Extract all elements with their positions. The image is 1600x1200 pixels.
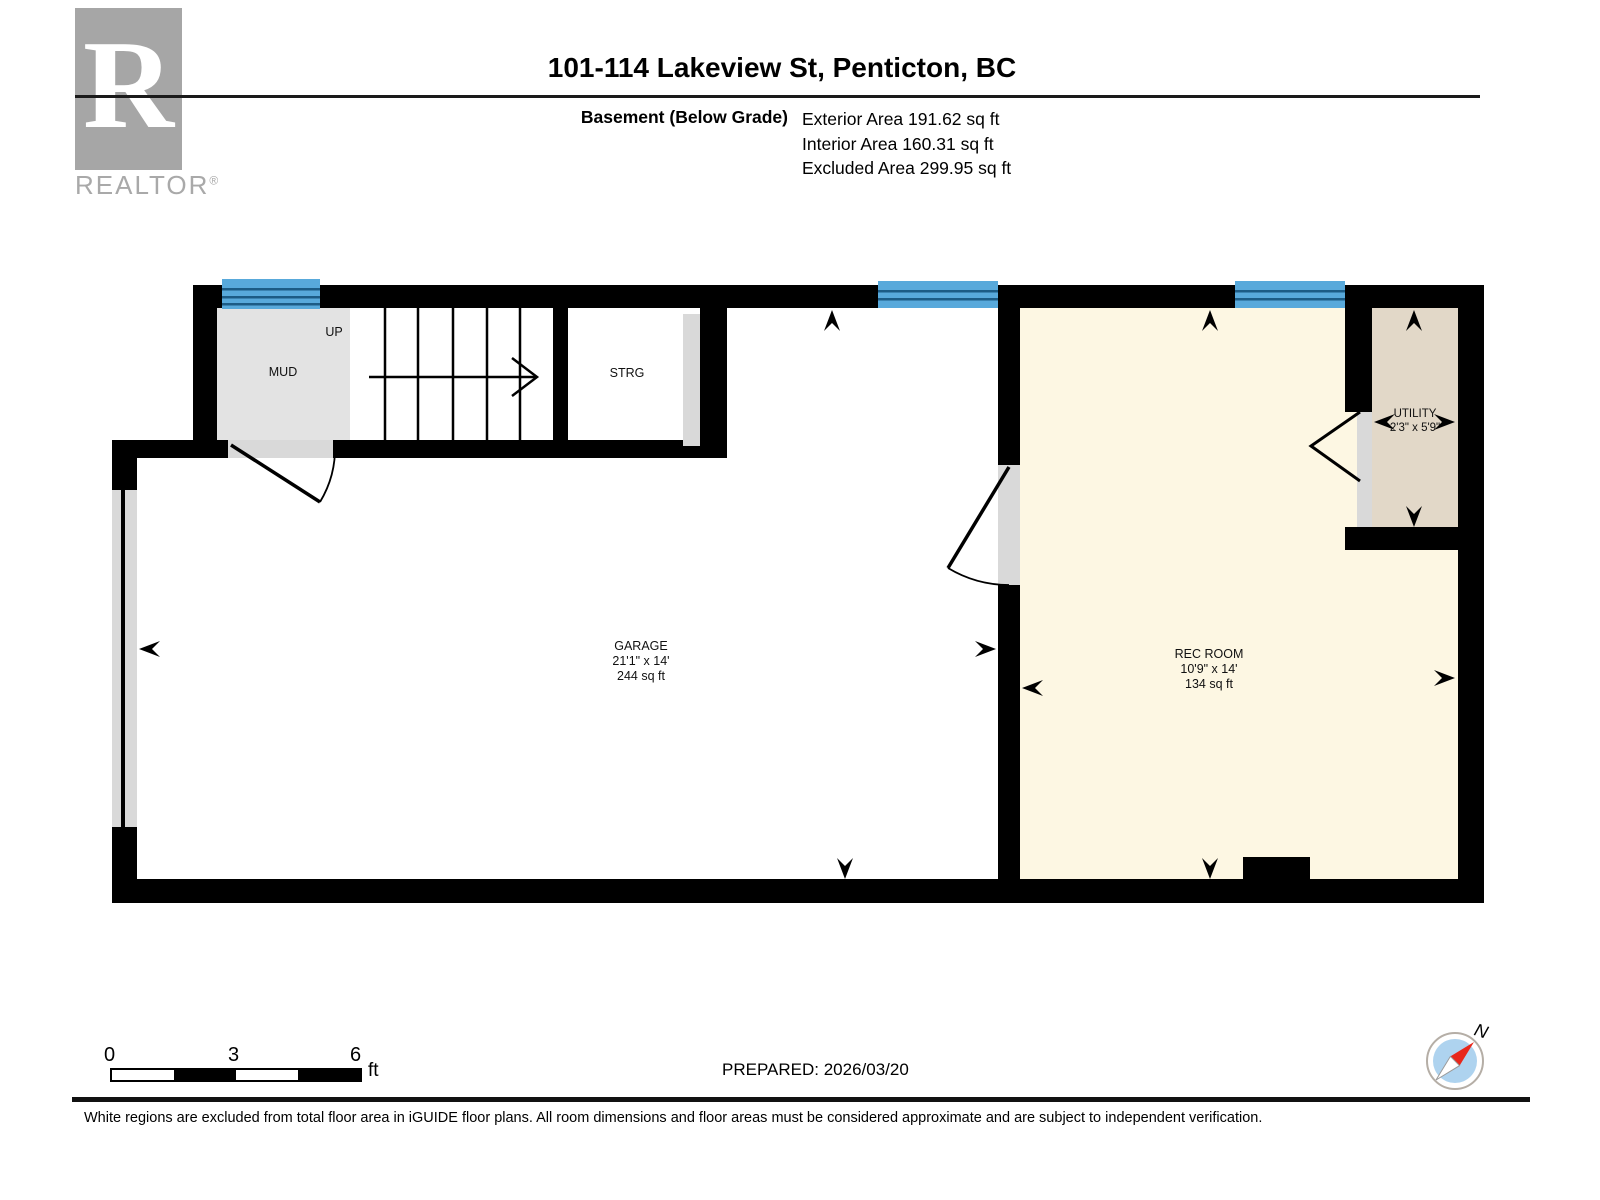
realtor-logo-letter: R <box>83 23 174 149</box>
scale-bar <box>110 1068 362 1082</box>
window-garage <box>878 281 998 308</box>
label-rec: REC ROOM <box>1175 647 1244 661</box>
opening-strg <box>683 314 700 446</box>
opening-utility <box>1357 412 1372 527</box>
scale-tick-0: 0 <box>104 1044 115 1067</box>
wall-garage-rec-upper <box>998 308 1020 465</box>
scale-tick-3: 3 <box>228 1044 239 1067</box>
footer-divider <box>72 1097 1530 1102</box>
garage-arrow-right <box>975 641 996 657</box>
garage-arrow-left <box>139 641 160 657</box>
garage-arrow-up <box>824 310 840 331</box>
wall-stairs-strg <box>553 308 568 440</box>
label-utility-dims: 2'3" x 5'9" <box>1390 422 1440 434</box>
realtor-logo: R <box>75 8 182 170</box>
wall-bump <box>1243 857 1310 879</box>
label-garage: GARAGE <box>614 639 668 653</box>
wall-utility-left-upper <box>1345 308 1372 412</box>
scale-tick-6: 6 <box>350 1044 361 1067</box>
label-up: UP <box>325 325 342 339</box>
window-rec <box>1235 281 1345 308</box>
wall-upper-block-bottom <box>112 440 727 458</box>
prepared-date: PREPARED: 2026/03/20 <box>722 1060 909 1080</box>
garage-door-line <box>121 490 125 827</box>
label-garage-dims: 21'1" x 14' <box>612 654 669 668</box>
wall-strg-right <box>700 308 727 458</box>
label-utility: UTILITY <box>1394 408 1437 420</box>
scale-unit: ft <box>368 1060 379 1082</box>
title-divider <box>75 95 1480 98</box>
label-rec-dims: 10'9" x 14' <box>1180 662 1237 676</box>
wall-bottom <box>112 879 1484 903</box>
opening-mud <box>228 440 333 458</box>
label-mud: MUD <box>269 365 297 379</box>
label-strg: STRG <box>610 366 645 380</box>
wall-garage-rec-lower <box>998 585 1020 879</box>
disclaimer-text: White regions are excluded from total fl… <box>84 1110 1524 1126</box>
wall-left-upper <box>193 285 217 458</box>
wall-utility-bottom <box>1345 527 1458 550</box>
label-garage-area: 244 sq ft <box>617 669 665 683</box>
compass-north-label: N <box>1472 1019 1491 1042</box>
garage-arrow-down <box>837 858 853 879</box>
window-mud <box>222 279 320 309</box>
label-rec-area: 134 sq ft <box>1185 677 1233 691</box>
floor-plan: MUD UP STRG GARAGE 21'1" x 14' 244 sq ft… <box>0 0 1600 1200</box>
wall-right <box>1458 285 1484 903</box>
stairs <box>385 308 520 440</box>
compass-icon: N <box>1418 1019 1498 1099</box>
